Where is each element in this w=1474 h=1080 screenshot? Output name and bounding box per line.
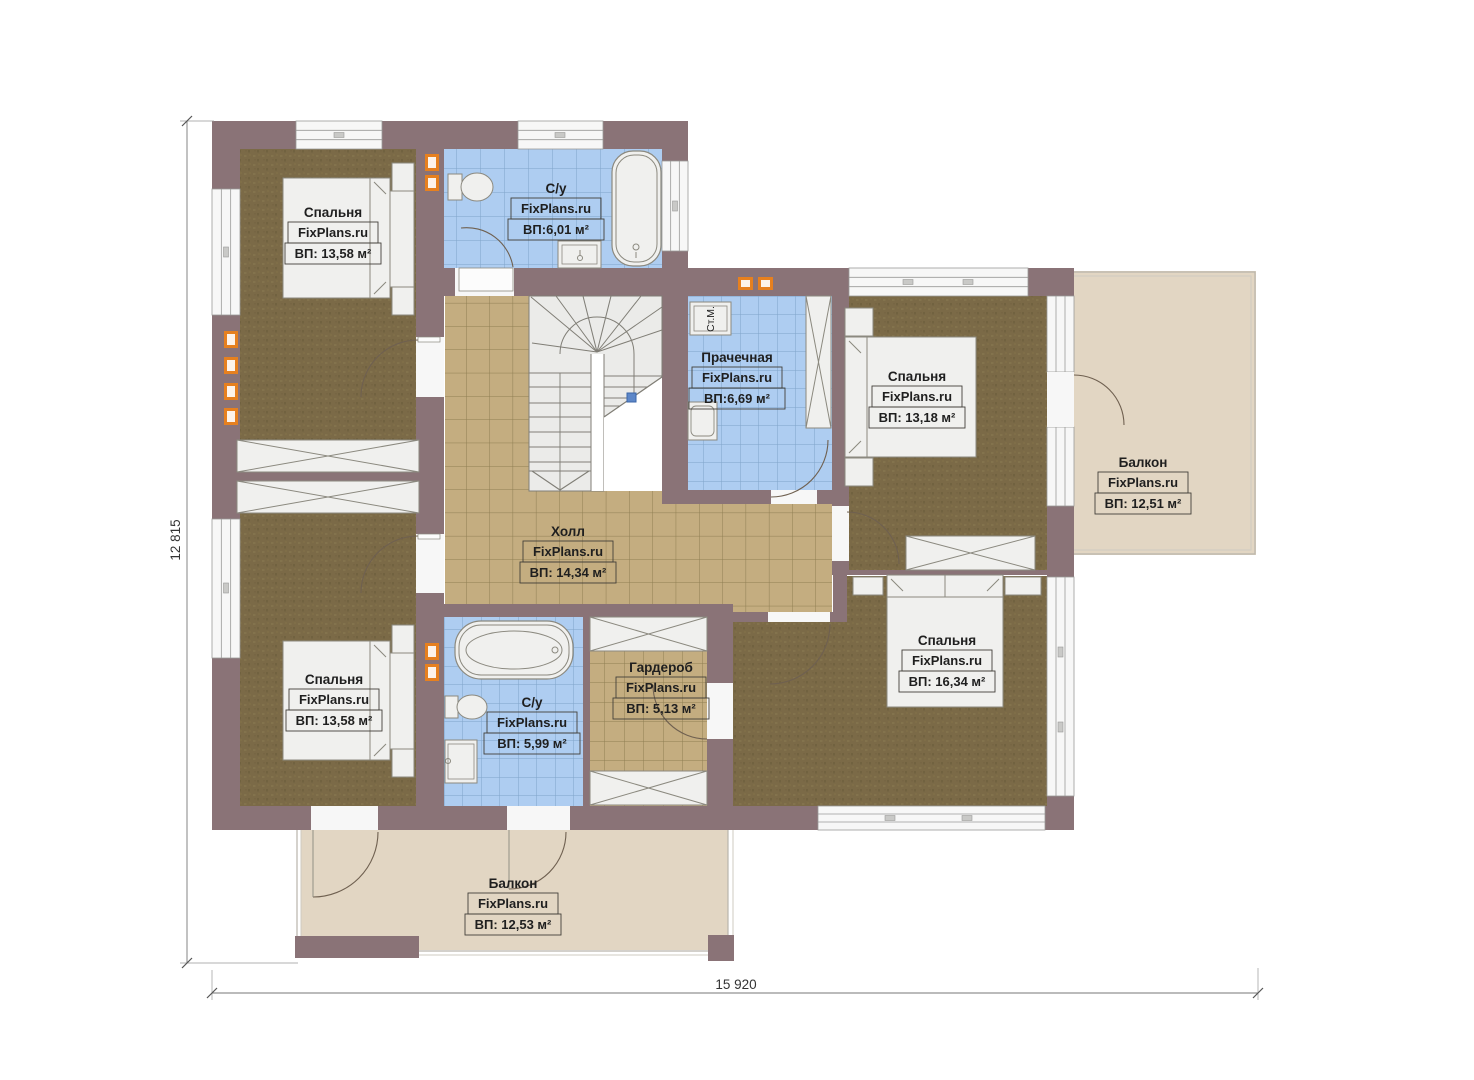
svg-text:ВП: 5,99 м²: ВП: 5,99 м²: [497, 736, 567, 751]
svg-text:FixPlans.ru: FixPlans.ru: [533, 544, 603, 559]
svg-text:Прачечная: Прачечная: [701, 350, 773, 365]
svg-text:Спальня: Спальня: [305, 672, 363, 687]
svg-text:12 815: 12 815: [168, 519, 183, 560]
svg-text:Ст.М.: Ст.М.: [705, 306, 717, 332]
svg-text:ВП:6,69 м²: ВП:6,69 м²: [704, 391, 771, 406]
svg-text:15 920: 15 920: [715, 977, 756, 992]
svg-text:FixPlans.ru: FixPlans.ru: [521, 201, 591, 216]
svg-text:ВП: 12,51 м²: ВП: 12,51 м²: [1105, 496, 1182, 511]
svg-text:FixPlans.ru: FixPlans.ru: [298, 225, 368, 240]
svg-text:FixPlans.ru: FixPlans.ru: [299, 692, 369, 707]
svg-text:FixPlans.ru: FixPlans.ru: [626, 680, 696, 695]
svg-text:FixPlans.ru: FixPlans.ru: [1108, 475, 1178, 490]
svg-text:С/у: С/у: [545, 181, 567, 196]
svg-text:Спальня: Спальня: [918, 633, 976, 648]
svg-text:FixPlans.ru: FixPlans.ru: [497, 715, 567, 730]
svg-text:Балкон: Балкон: [489, 876, 538, 891]
svg-text:ВП:6,01 м²: ВП:6,01 м²: [523, 222, 590, 237]
svg-text:ВП: 13,18 м²: ВП: 13,18 м²: [879, 410, 956, 425]
svg-text:FixPlans.ru: FixPlans.ru: [702, 370, 772, 385]
svg-text:Гардероб: Гардероб: [629, 660, 693, 675]
svg-text:Спальня: Спальня: [888, 369, 946, 384]
svg-text:FixPlans.ru: FixPlans.ru: [912, 653, 982, 668]
svg-text:Холл: Холл: [551, 524, 585, 539]
svg-text:FixPlans.ru: FixPlans.ru: [478, 896, 548, 911]
svg-text:ВП: 16,34 м²: ВП: 16,34 м²: [909, 674, 986, 689]
svg-text:Балкон: Балкон: [1119, 455, 1168, 470]
svg-text:ВП: 13,58 м²: ВП: 13,58 м²: [295, 246, 372, 261]
svg-text:ВП: 14,34 м²: ВП: 14,34 м²: [530, 565, 607, 580]
svg-text:ВП: 12,53 м²: ВП: 12,53 м²: [475, 917, 552, 932]
svg-text:С/у: С/у: [521, 695, 543, 710]
svg-text:FixPlans.ru: FixPlans.ru: [882, 389, 952, 404]
svg-text:ВП: 5,13 м²: ВП: 5,13 м²: [626, 701, 696, 716]
svg-text:ВП: 13,58 м²: ВП: 13,58 м²: [296, 713, 373, 728]
svg-text:Спальня: Спальня: [304, 205, 362, 220]
